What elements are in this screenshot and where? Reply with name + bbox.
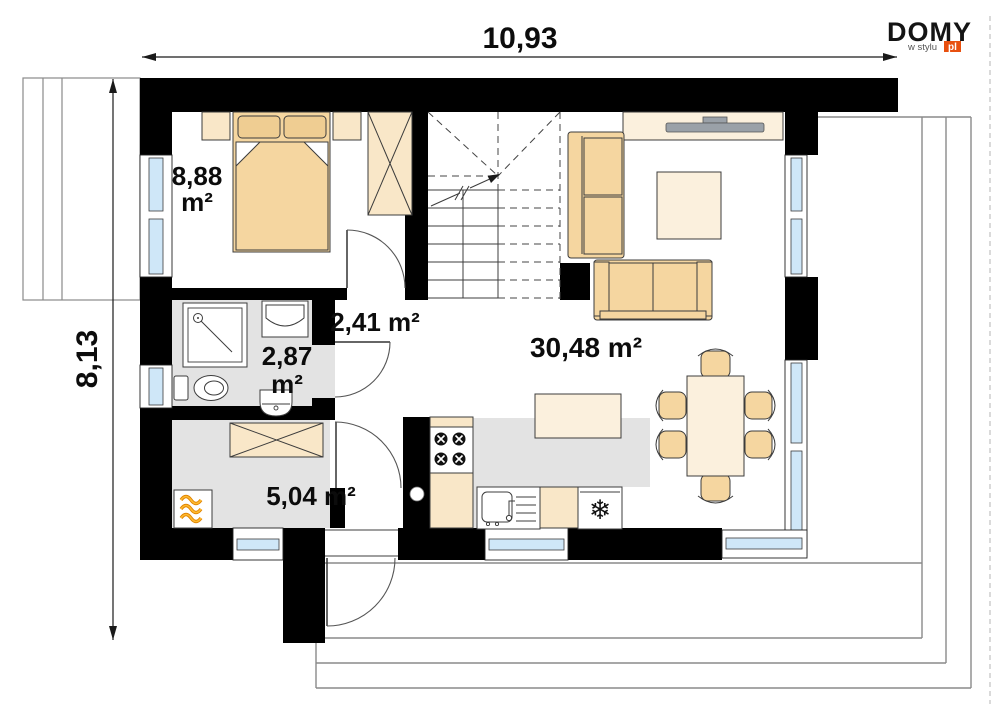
wall-vestibule-kitchen [403, 417, 430, 533]
bathroom-window [140, 365, 172, 408]
tv-stand [703, 117, 727, 123]
hallway-area-label: 2,41 m² [330, 307, 420, 337]
coffee-table [657, 172, 721, 239]
logo-tagline-text: w stylu [907, 42, 937, 53]
kitchen-sink [477, 487, 540, 529]
dining-chair-left-1 [659, 392, 686, 419]
bedroom-door [347, 230, 405, 288]
terrace-right-edges [922, 117, 971, 688]
dimension-height-label: 8,13 [71, 330, 104, 388]
left-porch-steps [23, 78, 140, 300]
wall-entrance-stub [283, 528, 325, 643]
terrace-inner-edge [316, 563, 922, 688]
dining-chair-right-1 [745, 392, 772, 419]
bedroom-furniture [202, 112, 412, 252]
stair-treads-lower [428, 190, 498, 298]
wall-bedroom-south [140, 288, 347, 300]
porch-outline [23, 78, 140, 300]
wall-pillar-right-mid [785, 277, 818, 360]
dimension-left: 8,13 [71, 79, 117, 640]
floor-plan-page: ❄ [0, 0, 995, 714]
main-sofa [594, 260, 712, 320]
washbasin [262, 301, 308, 337]
chimney-duct-symbol [410, 487, 424, 501]
kitchen-counter-top [430, 417, 473, 427]
bathroom-door [335, 342, 390, 397]
terrace-bottom-edges [316, 638, 971, 688]
dimension-width-label: 10,93 [482, 22, 557, 55]
dining-table [687, 376, 744, 476]
kitchen-window [485, 528, 568, 560]
wall-left-upper [140, 78, 172, 155]
nightstand-right [333, 112, 361, 140]
fridge-snowflake-icon: ❄ [589, 495, 612, 525]
floor-plan-svg: ❄ [0, 0, 995, 714]
tv-sideboard [623, 112, 783, 140]
wall-bottom-left [140, 528, 233, 560]
kitchen-counter-left [430, 473, 473, 528]
toilet [174, 376, 228, 401]
fridge: ❄ [578, 487, 622, 529]
logo-suffix-text: pl [948, 42, 957, 53]
wall-pillar-top-right [785, 112, 818, 155]
living-area-label: 30,48 m² [530, 332, 642, 363]
bathroom-area-unit: m² [271, 369, 303, 399]
wall-pillar-stairs-living [560, 263, 590, 300]
utility-area-label: 5,04 m² [266, 481, 356, 511]
living-window-right-lower [785, 360, 807, 556]
bedroom-wardrobe [368, 112, 412, 215]
entrance-opening [325, 528, 398, 560]
bathroom-area-value: 2,87 [262, 341, 313, 371]
stair-direction-line [431, 178, 492, 206]
utility-wardrobe [230, 423, 323, 457]
brand-logo: DOMY w stylu pl [887, 17, 972, 53]
dimension-top: 10,93 [142, 22, 897, 61]
utility-door [335, 422, 401, 488]
wall-bottom-right [568, 528, 722, 560]
dining-chair-top [701, 351, 730, 378]
dining-chair-left-2 [659, 431, 686, 458]
nightstand-left [202, 112, 230, 140]
stove [430, 427, 473, 473]
tv-screen [666, 123, 764, 132]
porch-step-lines [43, 78, 62, 300]
kitchen-island [535, 394, 621, 438]
living-window-right-upper [785, 155, 807, 277]
wall-bathroom-utility [172, 406, 335, 420]
dining-set [656, 349, 775, 503]
bedroom-area-unit: m² [181, 187, 213, 217]
loveseat-sofa [568, 132, 624, 258]
wall-top [140, 78, 898, 112]
bedroom-window [140, 155, 172, 277]
stair-upper-flight-dashed [428, 112, 560, 300]
dining-chair-right-2 [745, 431, 772, 458]
staircase [428, 112, 560, 300]
living-window-bottom-right [722, 530, 807, 558]
boiler [174, 490, 212, 528]
kitchen-counter-right [540, 487, 578, 528]
stair-treads-upper-dashed [498, 190, 560, 298]
entrance-door [325, 528, 398, 626]
dining-chair-bottom [701, 474, 730, 501]
utility-window [233, 528, 283, 560]
shower [183, 303, 247, 367]
double-bed [233, 112, 330, 252]
